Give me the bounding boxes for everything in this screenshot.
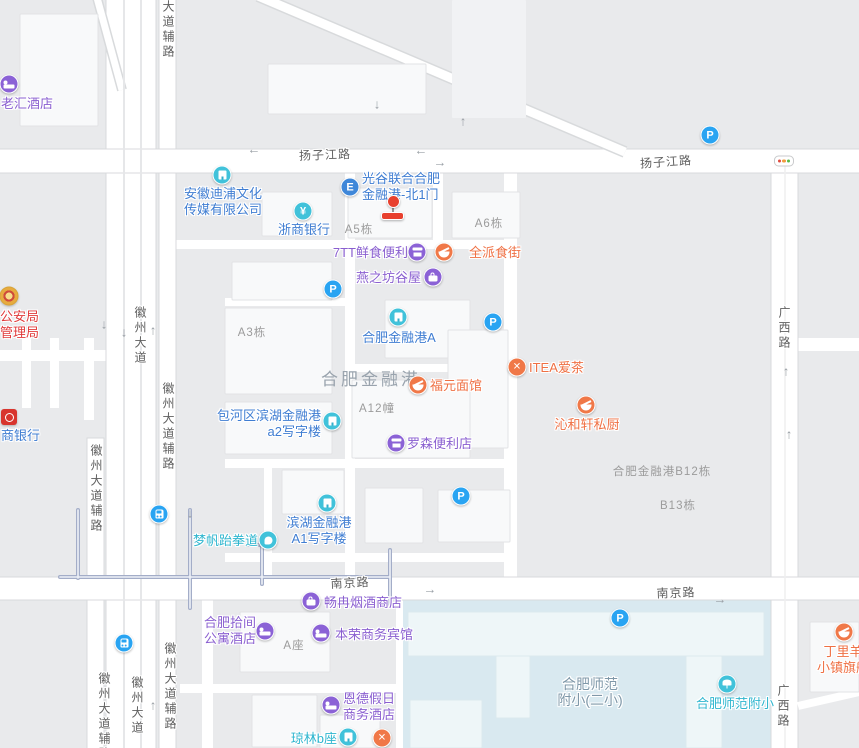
storefront-icon [412,248,422,257]
road-direction-arrow-right: → [424,582,437,597]
map-icon-layer: ¥E✕✕PPPPP↓↑←←→↓↓↑↓↑↑↑→→ [0,0,859,748]
7tt-convenience-icon[interactable] [408,243,427,262]
parking-letter: P [489,316,496,328]
marker-head [387,195,400,208]
parking-letter: P [616,612,623,624]
parking-icon[interactable]: P [611,609,630,628]
shifan-fuxiao-icon[interactable] [718,675,737,694]
road-direction-arrow-right: → [714,592,727,607]
road-direction-arrow-left: ← [248,142,261,157]
storefront-icon [391,439,401,448]
huishang-bank-icon[interactable] [1,409,17,425]
gate-marker[interactable] [380,197,406,223]
metro-station-icon[interactable] [115,634,134,653]
parking-icon[interactable]: P [701,126,720,145]
road-direction-arrow-up: ↑ [150,698,157,713]
binhu-a1-tower-icon[interactable] [318,494,337,513]
road-direction-arrow-down: ↓ [187,506,194,521]
zheshang-bank-icon[interactable]: ¥ [294,202,313,221]
yen-icon: ¥ [300,205,306,217]
baohe-a2-tower-icon[interactable] [323,412,342,431]
train-icon [155,509,163,519]
road-direction-arrow-right: → [434,155,447,170]
parking-letter: P [329,283,336,295]
office-building-icon [218,171,226,180]
gate-icon: E [346,181,353,193]
road-direction-arrow-up: ↑ [460,114,467,129]
qinhexuan-kitchen-icon[interactable] [577,396,596,415]
parking-icon[interactable]: P [452,487,471,506]
restaurant-icon: ✕ [377,733,387,743]
fuyuan-noodles-icon[interactable] [409,376,428,395]
benrong-hotel-icon[interactable] [312,624,331,643]
lawson-store-icon[interactable] [387,434,406,453]
mengfan-taekwondo-icon[interactable] [259,531,278,550]
road-direction-arrow-down: ↓ [121,325,128,340]
map-canvas[interactable]: 扬子江路扬子江路南京路南京路大道辅路徽州大道徽州大道辅路徽州大道辅路徽州大道辅路… [0,0,859,748]
qionglin-b-icon[interactable] [339,728,358,747]
restaurant-bowl-icon [439,247,450,257]
hotel-icon [326,701,337,709]
shopping-bag-icon [307,597,316,606]
ende-holiday-hotel-icon[interactable] [322,696,341,715]
restaurant-marker-icon[interactable]: ✕ [373,729,392,748]
road-direction-arrow-left: ← [415,143,428,158]
itea-tea-icon[interactable]: ✕ [508,358,527,377]
restaurant-bowl-icon [839,627,850,637]
restaurant-icon: ✕ [512,362,522,372]
police-badge-icon[interactable] [0,287,19,306]
anhui-dipu-media-icon[interactable] [213,166,232,185]
hotel-icon [316,629,327,637]
restaurant-bowl-icon [413,380,424,390]
parking-letter: P [457,490,464,502]
hefei-shijian-hotel-icon[interactable] [256,622,275,641]
parking-icon[interactable]: P [484,313,503,332]
marker-base [381,212,404,220]
office-building-icon [328,417,336,426]
hotel-icon [260,627,271,635]
road-direction-arrow-down: ↓ [374,97,381,112]
road-direction-arrow-up: ↑ [783,364,790,379]
quanpai-food-street-icon[interactable] [435,243,454,262]
restaurant-bowl-icon [581,400,592,410]
yanzhifang-guwu-icon[interactable] [424,268,443,287]
parking-icon[interactable]: P [324,280,343,299]
train-icon [120,638,128,648]
parking-letter: P [706,129,713,141]
road-direction-arrow-down: ↓ [101,317,108,332]
changran-tobacco-icon[interactable] [302,592,321,611]
office-building-icon [323,499,331,508]
taekwondo-icon [264,536,272,544]
traffic-light-icon [774,156,794,167]
hotel-icon [4,80,15,88]
office-building-icon [394,313,402,322]
laohui-hotel-icon[interactable] [0,75,19,94]
metro-station-icon[interactable] [150,505,169,524]
school-tree-icon [723,680,732,689]
shopping-bag-icon [429,273,438,282]
road-direction-arrow-up: ↑ [786,427,793,442]
jinronggang-a-icon[interactable] [389,308,408,327]
road-direction-arrow-up: ↑ [150,323,157,338]
office-building-icon [344,733,352,742]
guanggu-north-gate1-icon[interactable]: E [341,178,360,197]
dingliyang-flagship-icon[interactable] [835,623,854,642]
